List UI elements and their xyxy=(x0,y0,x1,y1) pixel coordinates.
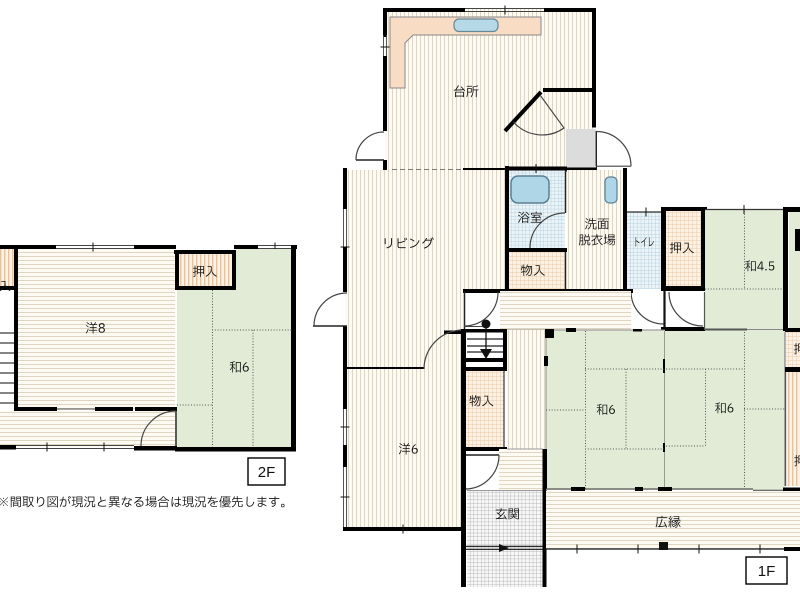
svg-text:2F: 2F xyxy=(258,464,276,481)
svg-text:1F: 1F xyxy=(758,563,776,580)
